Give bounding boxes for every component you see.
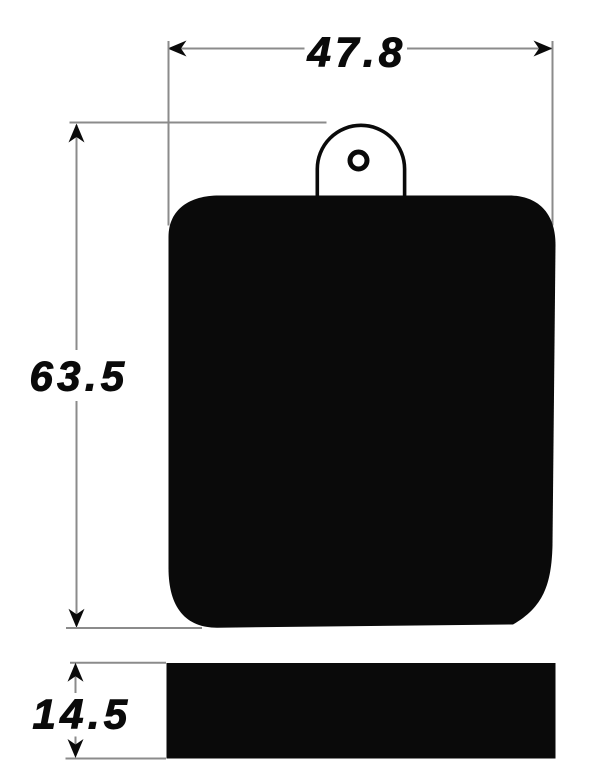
svg-text:47.8: 47.8 <box>307 29 407 76</box>
svg-text:63.5: 63.5 <box>30 353 129 400</box>
svg-text:14.5: 14.5 <box>33 691 132 738</box>
